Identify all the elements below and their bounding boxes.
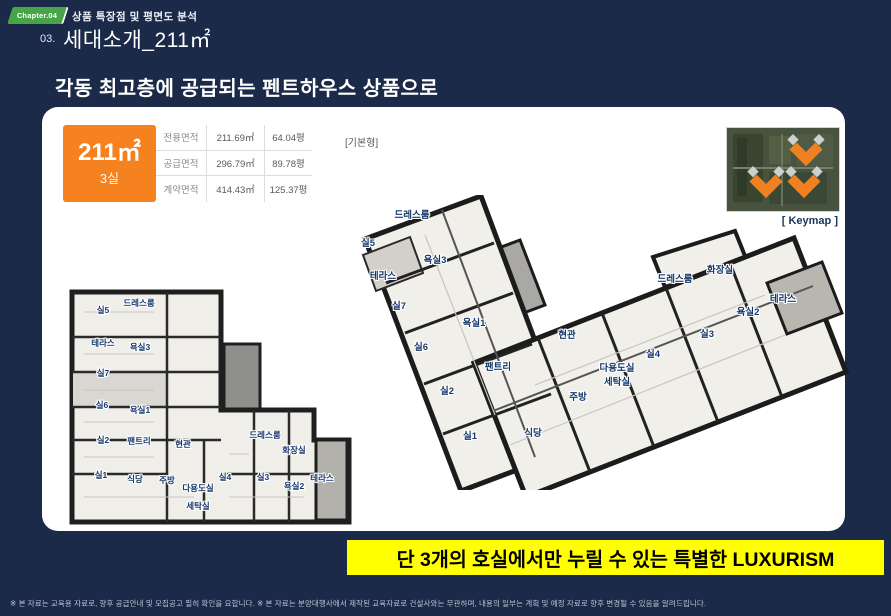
room-label: 세탁실 bbox=[604, 374, 630, 388]
room-label: 드레스룸 bbox=[249, 429, 280, 441]
caption-base-plan: [기본형] bbox=[345, 134, 378, 149]
room-label: 현관 bbox=[175, 438, 191, 450]
room-label: 욕실1 bbox=[130, 404, 150, 416]
room-label: 드레스룸 bbox=[395, 207, 430, 221]
unit-card: 211㎡ 3실 bbox=[63, 125, 156, 202]
unit-area-value: 211㎡ bbox=[63, 140, 156, 165]
room-label: 욕실1 bbox=[463, 315, 486, 329]
room-label: 테라스 bbox=[770, 291, 796, 305]
room-label: 실4 bbox=[219, 471, 232, 483]
room-label: 욕실2 bbox=[284, 480, 304, 492]
room-label: 실7 bbox=[97, 367, 110, 379]
room-label: 팬트리 bbox=[127, 435, 150, 447]
room-label: 식당 bbox=[127, 473, 143, 485]
room-label: 실3 bbox=[700, 326, 714, 340]
room-label: 화장실 bbox=[282, 444, 305, 456]
room-label: 팬트리 bbox=[485, 359, 511, 373]
breadcrumb: 상품 특장점 및 평면도 분석 bbox=[72, 9, 197, 24]
room-label: 식당 bbox=[524, 425, 541, 439]
room-label: 현관 bbox=[558, 327, 575, 341]
room-label: 실5 bbox=[361, 235, 375, 249]
area-row-label: 전용면적 bbox=[156, 125, 206, 150]
chapter-badge: Chapter.04 bbox=[7, 7, 69, 24]
area-sqm-value: 296.79㎡ bbox=[206, 151, 264, 176]
room-label: 실2 bbox=[440, 383, 454, 397]
room-label: 세탁실 bbox=[186, 500, 209, 512]
chapter-badge-label: Chapter.04 bbox=[10, 7, 64, 24]
room-label: 테라스 bbox=[370, 268, 396, 282]
area-pyeong-value: 125.37평 bbox=[264, 176, 312, 202]
table-row: 공급면적 296.79㎡ 89.78평 bbox=[156, 151, 312, 177]
area-row-label: 공급면적 bbox=[156, 151, 206, 176]
page-title: 세대소개_211㎡ bbox=[63, 24, 211, 54]
room-label: 욕실3 bbox=[424, 252, 447, 266]
room-label: 다용도실 bbox=[600, 360, 635, 374]
room-label: 테라스 bbox=[310, 472, 333, 484]
room-label: 실1 bbox=[95, 469, 108, 481]
area-sqm-value: 414.43㎡ bbox=[206, 176, 264, 202]
room-label: 실4 bbox=[646, 346, 660, 360]
slide-page: Chapter.04 상품 특장점 및 평면도 분석 03. 세대소개_211㎡… bbox=[0, 0, 891, 616]
room-label: 욕실2 bbox=[737, 304, 760, 318]
room-label: 실3 bbox=[257, 471, 270, 483]
room-label: 욕실3 bbox=[130, 341, 150, 353]
table-row: 계약면적 414.43㎡ 125.37평 bbox=[156, 176, 312, 202]
room-label: 테라스 bbox=[91, 337, 114, 349]
highlight-banner: 단 3개의 호실에서만 누릴 수 있는 특별한 LUXURISM bbox=[347, 540, 884, 575]
room-label: 다용도실 bbox=[182, 482, 213, 494]
area-row-label: 계약면적 bbox=[156, 176, 206, 202]
section-number: 03. bbox=[40, 33, 55, 45]
room-label: 실2 bbox=[97, 434, 110, 446]
floorplan-2d: 실5드레스룸테라스욕실3실7실6욕실1실2팬트리현관실1식당주방다용도실세탁실실… bbox=[64, 282, 354, 532]
room-label: 드레스룸 bbox=[123, 297, 154, 309]
content-panel: 211㎡ 3실 전용면적 211.69㎡ 64.04평 공급면적 296.79㎡… bbox=[42, 107, 845, 531]
area-pyeong-value: 89.78평 bbox=[264, 151, 312, 176]
room-label: 실6 bbox=[414, 339, 428, 353]
area-table: 전용면적 211.69㎡ 64.04평 공급면적 296.79㎡ 89.78평 … bbox=[156, 125, 312, 202]
room-label: 드레스룸 bbox=[658, 271, 693, 285]
area-pyeong-value: 64.04평 bbox=[264, 125, 312, 150]
floorplan-3d: 드레스룸실5욕실3테라스실7욕실1실6현관팬트리실2다용도실세탁실주방실1식당드… bbox=[335, 195, 865, 490]
room-label: 주방 bbox=[569, 389, 586, 403]
room-label: 실7 bbox=[392, 298, 406, 312]
room-label: 주방 bbox=[159, 474, 175, 486]
room-label: 화장실 bbox=[707, 262, 733, 276]
footer-disclaimer: ※ 본 자료는 교육용 자료로, 향후 공급안내 및 모집공고 필히 확인을 요… bbox=[10, 598, 885, 609]
room-label: 실5 bbox=[97, 304, 110, 316]
unit-rooms-value: 3실 bbox=[63, 168, 156, 187]
room-label: 실6 bbox=[96, 399, 109, 411]
area-sqm-value: 211.69㎡ bbox=[206, 125, 264, 150]
room-label: 실1 bbox=[463, 428, 477, 442]
slide-subtitle: 각동 최고층에 공급되는 펜트하우스 상품으로 bbox=[55, 72, 438, 101]
table-row: 전용면적 211.69㎡ 64.04평 bbox=[156, 125, 312, 151]
